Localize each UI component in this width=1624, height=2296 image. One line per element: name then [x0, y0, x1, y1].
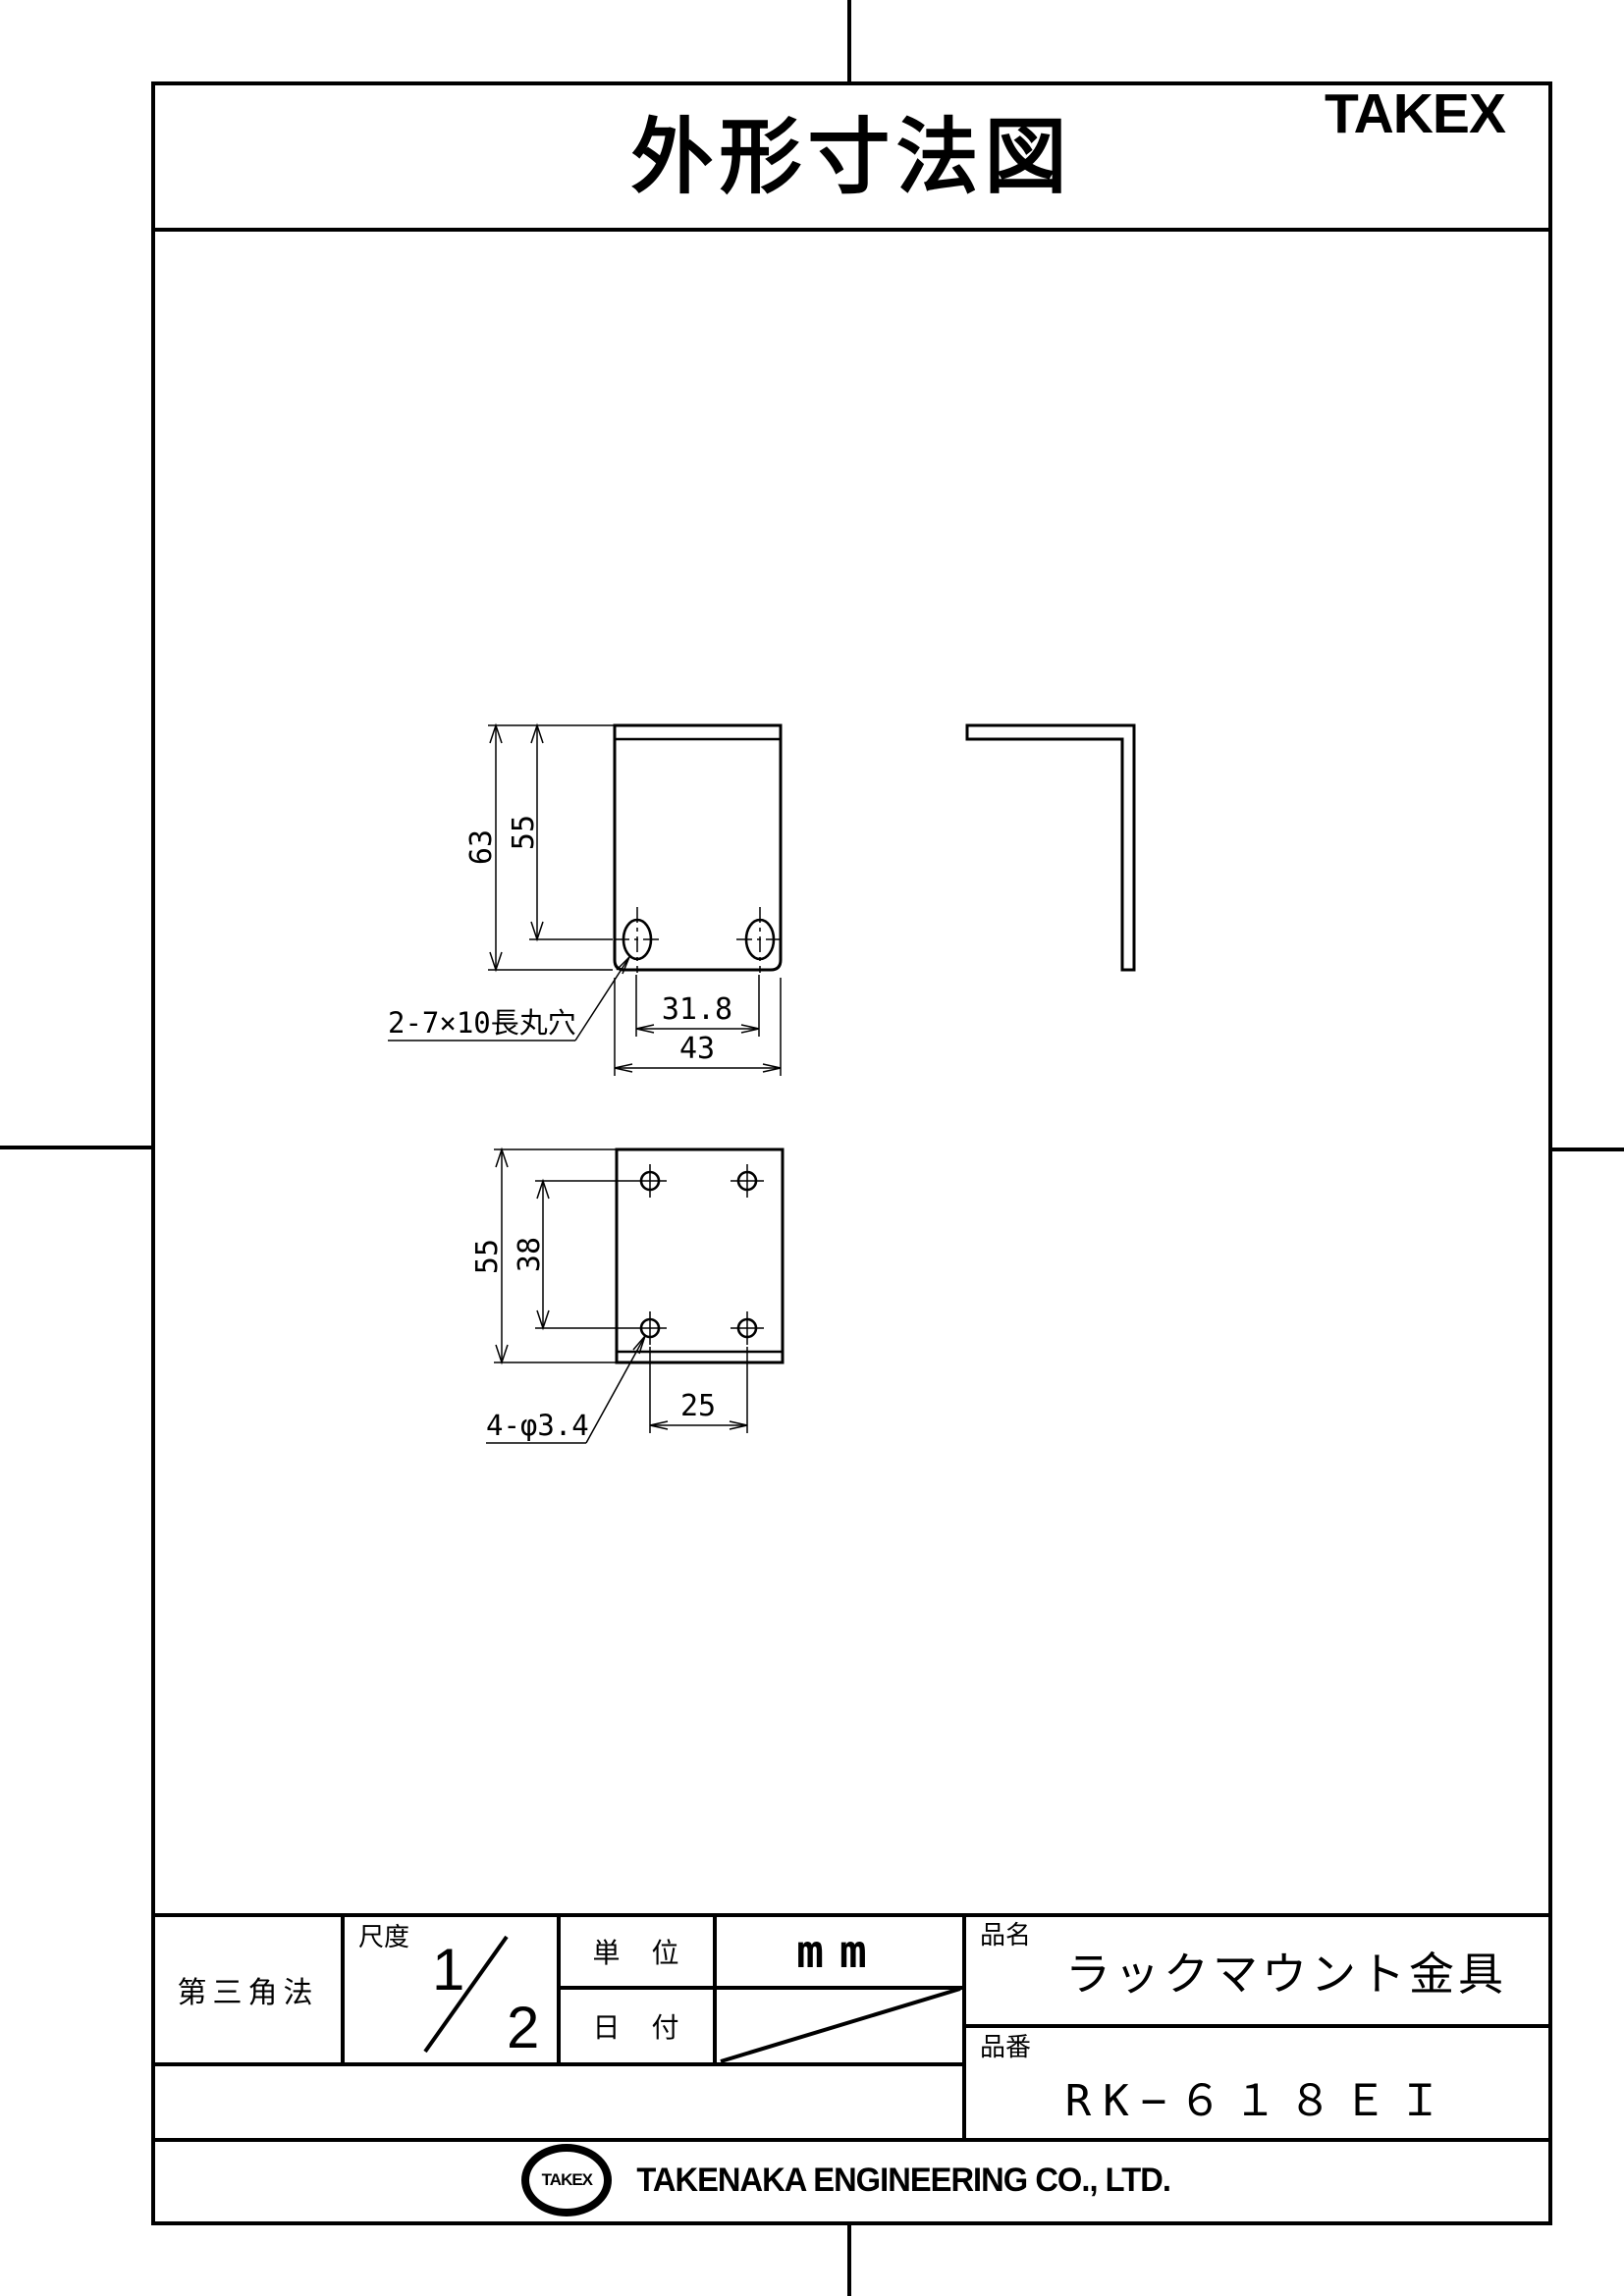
takex-oval-logo-text: TAKEX: [542, 2170, 592, 2190]
top-hole-callout: 4-φ3.4: [486, 1409, 589, 1442]
dim-front-hole-pitch: 31.8: [662, 992, 732, 1027]
company-name: TAKENAKA ENGINEERING CO., LTD.: [637, 2162, 1171, 2200]
date-label: 日 付: [561, 1990, 713, 2062]
takex-oval-logo: TAKEX: [521, 2144, 612, 2216]
dim-top-depth: 55: [470, 1239, 505, 1274]
drawing-sheet: 外形寸法図 TAKEX: [0, 0, 1624, 2296]
vline-projection-scale: [341, 1913, 345, 2066]
dim-front-total-height: 63: [464, 829, 499, 865]
dim-top-hole-pitch-depth: 38: [513, 1237, 547, 1272]
top-view: [617, 1149, 783, 1362]
scale-numerator: 1: [432, 1941, 464, 2000]
front-view: [614, 725, 784, 973]
footer-band: TAKEX TAKENAKA ENGINEERING CO., LTD.: [155, 2142, 1548, 2218]
top-view-dimensions: 55 38 25 4-φ3.4: [470, 1149, 747, 1443]
scale-denominator: 2: [507, 1999, 539, 2057]
front-hole-callout: 2-7×10長丸穴: [388, 1006, 576, 1040]
unit-label: 単 位: [561, 1917, 713, 1986]
dim-top-hole-pitch-width: 25: [680, 1389, 716, 1423]
part-number-value: RK−６１８ＥＩ: [966, 2061, 1552, 2132]
dim-front-width: 43: [679, 1032, 715, 1066]
front-view-dimensions: 63 55 31.8 43 2-7×10長丸穴: [388, 725, 781, 1076]
side-view: [967, 725, 1134, 970]
dim-front-hole-height: 55: [507, 815, 541, 850]
scale-label: 尺度: [358, 1924, 409, 1949]
unit-value: mm: [717, 1917, 962, 1986]
product-name-value: ラックマウント金具: [1021, 1942, 1551, 2001]
date-blank-slash: [721, 1989, 960, 2061]
name-number-divider: [962, 2024, 1552, 2028]
projection-method: 第三角法: [155, 1917, 341, 2062]
part-number-label: 品番: [980, 2034, 1031, 2059]
